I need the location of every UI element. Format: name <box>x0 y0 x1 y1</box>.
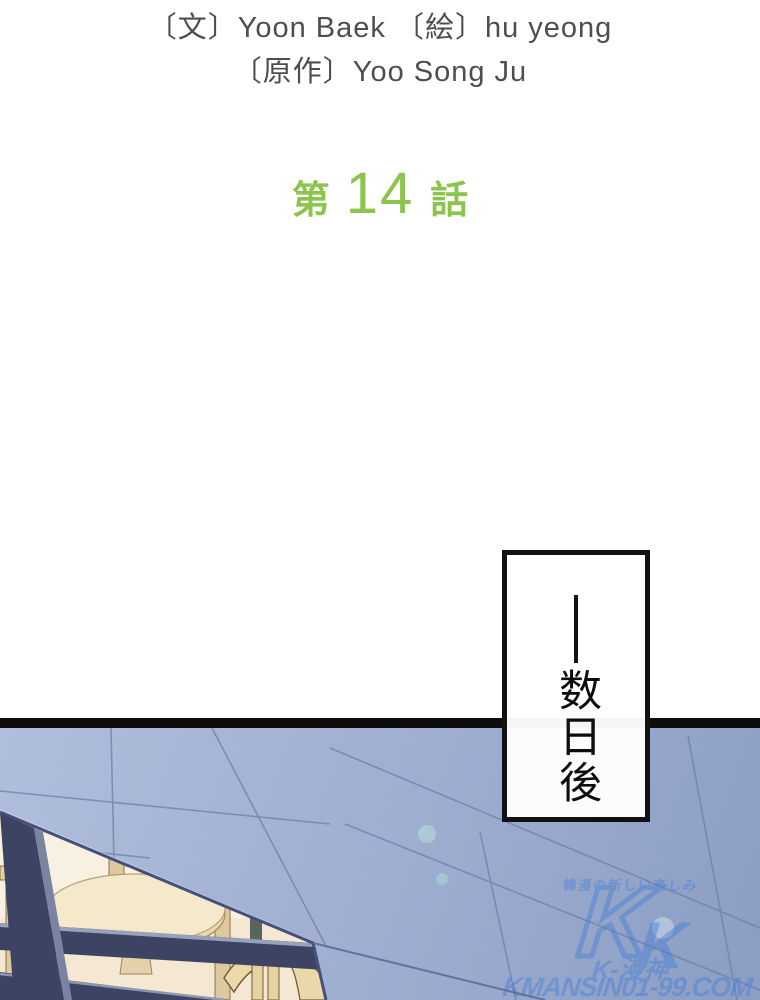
chapter-suffix: 話 <box>430 169 468 224</box>
credits-line-1: 〔文〕Yoon Baek 〔絵〕hu yeong <box>0 6 760 50</box>
watermark-domain: KMANSIN01-99.COM <box>501 971 756 1000</box>
chapter-title: 第 14 話 <box>0 160 760 227</box>
webtoon-page: 〔文〕Yoon Baek 〔絵〕hu yeong 〔原作〕Yoo Song Ju… <box>0 0 760 1000</box>
credits-line-2: 〔原作〕Yoo Song Ju <box>0 50 760 94</box>
vertical-dash <box>574 595 578 663</box>
chapter-number: 14 <box>346 160 415 227</box>
caption-text: 数日後 <box>555 668 598 806</box>
caption-box: 数日後 <box>502 550 650 822</box>
author-credits: 〔文〕Yoon Baek 〔絵〕hu yeong 〔原作〕Yoo Song Ju <box>0 6 760 94</box>
chapter-prefix: 第 <box>292 169 330 224</box>
